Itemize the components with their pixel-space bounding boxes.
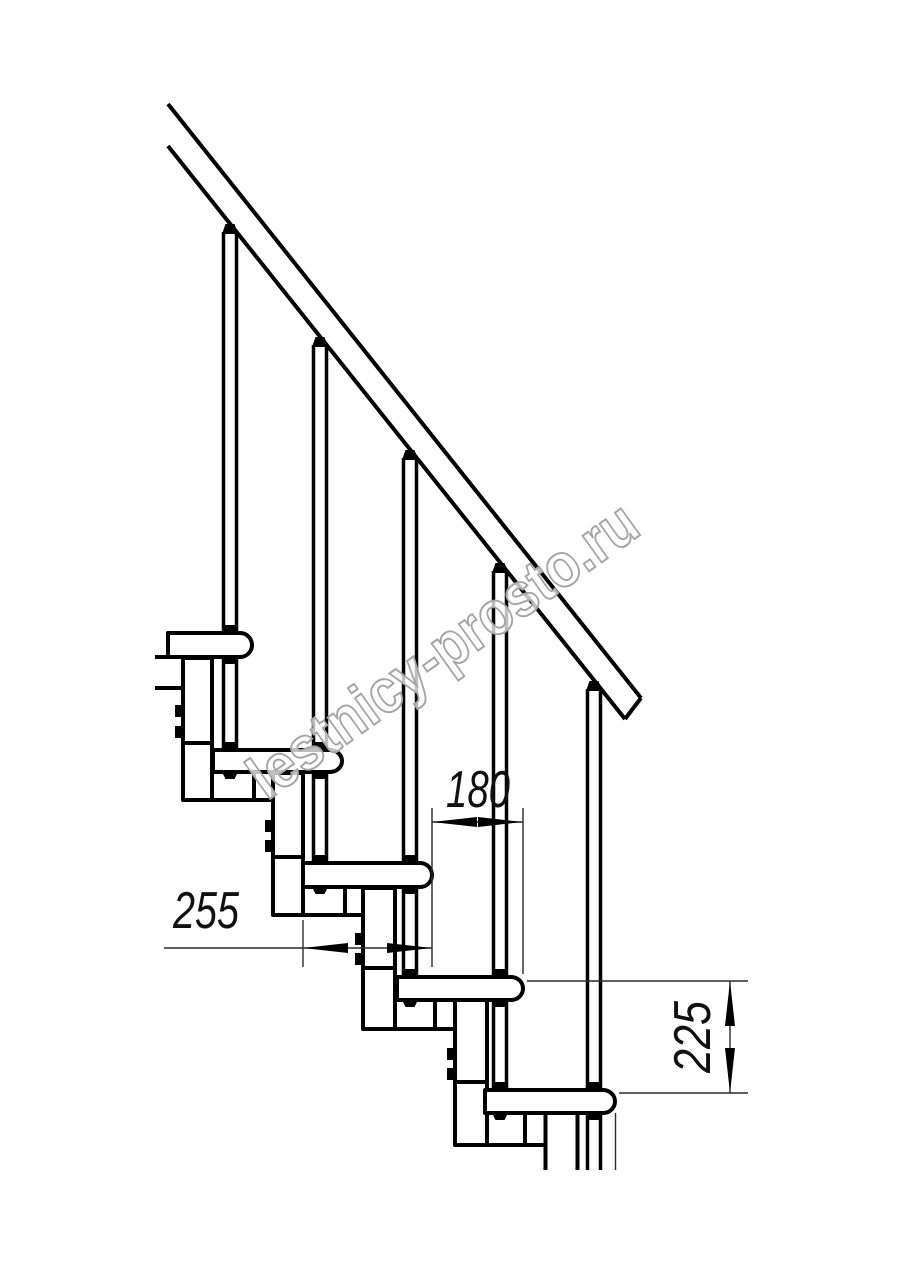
arrowhead-right-icon bbox=[387, 943, 432, 953]
dimension-label-tread-depth: 255 bbox=[172, 882, 240, 940]
bolt-icon bbox=[175, 705, 183, 717]
support-module bbox=[447, 1000, 545, 1145]
support-module bbox=[546, 1113, 578, 1170]
drawing-page: 180 255 225 lestnicy-prosto.ru bbox=[0, 0, 914, 1280]
dimension-label-run: 180 bbox=[446, 761, 510, 819]
bolt-icon bbox=[447, 1068, 455, 1080]
bolt-icon bbox=[175, 726, 183, 738]
bolt-icon bbox=[265, 820, 273, 832]
tread bbox=[485, 1090, 615, 1113]
nut-icon bbox=[312, 887, 328, 894]
arrowhead-up-icon bbox=[725, 981, 735, 1026]
dimension-label-rise: 225 bbox=[664, 1000, 722, 1074]
baluster bbox=[224, 232, 237, 750]
bolt-icon bbox=[265, 840, 273, 852]
bolt-icon bbox=[355, 953, 363, 965]
staircase-drawing-canvas: 180 255 225 lestnicy-prosto.ru bbox=[0, 0, 914, 1280]
nut-icon bbox=[492, 1113, 508, 1120]
arrowhead-down-icon bbox=[725, 1048, 735, 1093]
baluster bbox=[314, 345, 327, 863]
tread bbox=[168, 633, 252, 657]
tread bbox=[303, 863, 432, 887]
bolt-icon bbox=[355, 933, 363, 945]
arrowhead-left-icon bbox=[303, 943, 348, 953]
dimension-run: 180 bbox=[432, 761, 523, 974]
dimension-rise: 225 bbox=[527, 981, 748, 1170]
bolt-icon bbox=[447, 1048, 455, 1060]
nut-icon bbox=[222, 772, 238, 779]
nut-icon bbox=[402, 1000, 418, 1007]
tread bbox=[397, 977, 523, 1000]
